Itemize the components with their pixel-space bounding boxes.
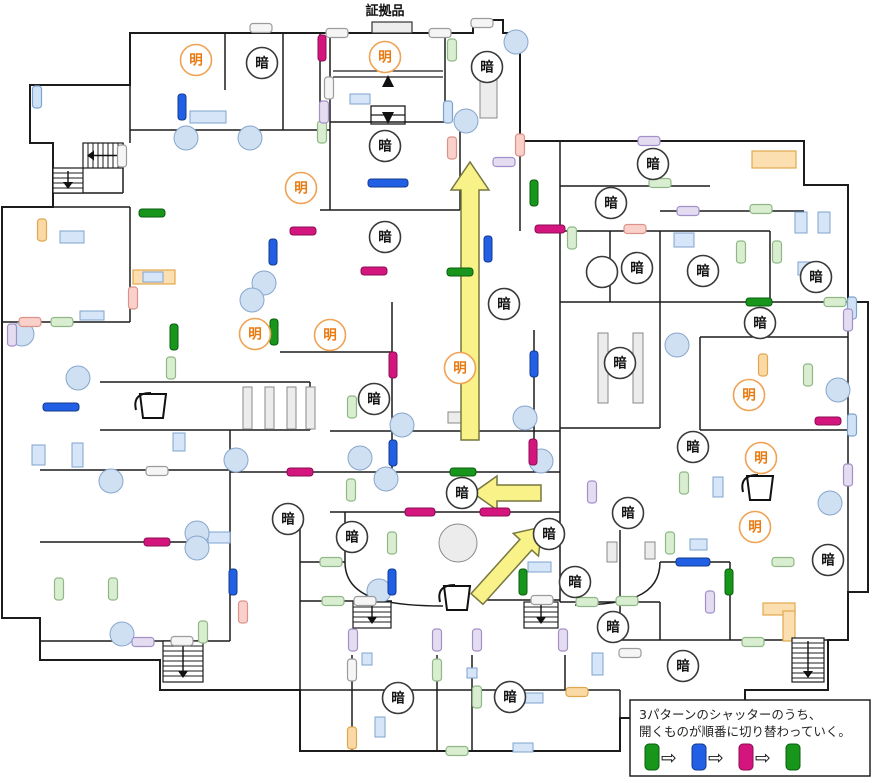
shutter-marker-pink xyxy=(361,267,387,275)
furniture xyxy=(713,477,723,497)
door-marker-lv xyxy=(473,629,482,651)
shelf xyxy=(645,542,655,559)
door-marker-lv xyxy=(8,324,17,346)
shutter-marker-green xyxy=(519,569,527,595)
shutter-marker-blue xyxy=(676,558,710,566)
furniture xyxy=(190,111,226,123)
furniture xyxy=(362,653,372,665)
door-marker-lg xyxy=(322,597,344,606)
room-dark-label-text: 暗 xyxy=(613,355,627,372)
room-bright-label-text: 明 xyxy=(378,50,392,66)
furniture xyxy=(375,717,385,737)
column xyxy=(390,413,414,437)
room-dark-label-text: 暗 xyxy=(606,619,620,636)
furniture xyxy=(80,311,104,320)
shutter-marker-green xyxy=(725,569,733,595)
door-marker-sa xyxy=(516,134,525,156)
door-marker-lg xyxy=(680,472,689,494)
legend-arrow-icon: ⇨ xyxy=(755,747,771,769)
furniture xyxy=(795,212,807,233)
shutter-marker-green xyxy=(139,209,165,217)
door-marker-lv xyxy=(132,638,154,647)
furniture xyxy=(173,433,185,451)
shutter-marker-green xyxy=(746,298,772,306)
evidence-box xyxy=(372,22,412,33)
shelf xyxy=(243,387,252,429)
furniture xyxy=(350,94,370,104)
room-dark-label-text: 暗 xyxy=(542,526,556,543)
shutter-marker-blue xyxy=(229,569,237,595)
door-marker-wh xyxy=(619,649,641,658)
room-dark-label-text: 暗 xyxy=(821,552,835,569)
room-dark-label-text: 暗 xyxy=(281,511,295,528)
room-dark-label-text: 暗 xyxy=(809,269,823,286)
room-bright-label-text: 明 xyxy=(323,328,337,344)
room-dark-label-text: 暗 xyxy=(367,391,381,408)
door-marker-sa xyxy=(448,137,457,159)
door-marker-lg xyxy=(576,598,598,607)
room-dark-label-text: 暗 xyxy=(480,59,494,76)
door-marker-lg xyxy=(318,121,327,143)
door-marker-lg xyxy=(666,532,675,554)
room-dark-label-text: 暗 xyxy=(345,529,359,546)
column xyxy=(174,126,198,150)
shelf xyxy=(287,387,296,429)
shutter-marker-green xyxy=(447,268,473,276)
furniture xyxy=(60,231,84,243)
door-marker-lg xyxy=(737,241,746,263)
furniture xyxy=(690,539,707,550)
column xyxy=(110,622,134,646)
door-marker-lv xyxy=(433,629,442,651)
door-marker-lv xyxy=(320,101,329,123)
legend-shutter-pink-2 xyxy=(739,744,753,770)
shelf xyxy=(265,387,274,429)
door-marker-or xyxy=(38,219,47,241)
door-marker-lb xyxy=(33,86,42,108)
room-dark-label-text: 暗 xyxy=(621,505,635,522)
door-marker-lg xyxy=(568,227,577,249)
legend-shutter-green-3 xyxy=(786,744,800,770)
room-bright-label-text: 明 xyxy=(748,520,762,536)
door-marker-lg xyxy=(446,747,468,756)
legend: 3パターンのシャッターのうち、 開くものが順番に切り替わっていく。 ⇨⇨⇨ xyxy=(630,700,870,776)
door-marker-wh xyxy=(471,19,493,28)
bucket-icon xyxy=(140,394,166,418)
door-marker-or xyxy=(348,727,357,749)
shutter-marker-green xyxy=(530,180,538,206)
room-dark-label-text: 暗 xyxy=(686,439,700,456)
furniture xyxy=(528,562,551,572)
room-dark-label-text: 暗 xyxy=(455,485,469,502)
shutter-marker-green xyxy=(270,319,278,345)
door-marker-lg xyxy=(167,357,176,379)
furniture xyxy=(143,272,163,282)
column xyxy=(99,469,123,493)
door-marker-wh xyxy=(171,637,193,646)
shutter-marker-blue xyxy=(269,239,277,265)
furniture xyxy=(674,233,694,247)
legend-arrow-icon: ⇨ xyxy=(661,747,677,769)
door-marker-wh xyxy=(531,596,553,605)
shutter-marker-pink xyxy=(535,225,565,233)
column xyxy=(224,448,248,472)
column xyxy=(348,446,372,470)
legend-arrow-icon: ⇨ xyxy=(708,747,724,769)
column xyxy=(818,491,842,515)
room-bright-label-text: 明 xyxy=(453,361,467,377)
door-marker-lv xyxy=(559,629,568,651)
shutter-marker-blue xyxy=(43,403,79,411)
door-marker-wh xyxy=(326,29,348,38)
door-marker-sa xyxy=(19,318,41,327)
furniture xyxy=(513,743,533,752)
room-dark-label-text: 暗 xyxy=(646,156,660,173)
door-marker-lg xyxy=(804,364,813,386)
door-marker-wh xyxy=(429,29,451,38)
door-marker-lv xyxy=(638,137,660,146)
map-canvas: 明明明明明明明明明暗暗暗暗暗暗暗暗暗暗暗暗暗暗暗暗暗暗暗暗暗暗暗暗暗 証拠品 3… xyxy=(0,0,874,783)
column xyxy=(504,30,528,54)
door-marker-lg xyxy=(433,659,442,681)
shutter-marker-green xyxy=(450,468,476,476)
door-marker-lv xyxy=(588,481,597,503)
door-marker-wh xyxy=(348,659,357,681)
door-marker-lg xyxy=(109,578,118,600)
shutter-marker-pink xyxy=(287,468,313,476)
legend-line-1: 3パターンのシャッターのうち、 xyxy=(639,707,821,722)
highlight-area xyxy=(783,611,795,641)
column xyxy=(185,536,209,560)
shutter-marker-blue xyxy=(530,351,538,377)
door-marker-lg xyxy=(348,396,357,418)
shutter-marker-pink xyxy=(290,227,316,235)
shelf xyxy=(607,542,617,562)
shutter-marker-blue xyxy=(388,569,396,595)
column xyxy=(66,366,90,390)
room-dark-label-text: 暗 xyxy=(497,296,511,313)
bucket-icon xyxy=(444,586,470,610)
furniture xyxy=(208,532,230,543)
door-marker-lv xyxy=(706,591,715,613)
floor-map: 明明明明明明明明明暗暗暗暗暗暗暗暗暗暗暗暗暗暗暗暗暗暗暗暗暗暗暗暗暗 証拠品 3… xyxy=(0,0,874,783)
door-marker-lg xyxy=(824,298,846,307)
furniture xyxy=(818,212,830,233)
legend-shutter-green-0 xyxy=(645,744,659,770)
room-bright-label-text: 明 xyxy=(754,451,768,467)
door-marker-wh xyxy=(146,467,168,476)
shutter-marker-pink xyxy=(318,35,326,61)
room-bright-label-text: 明 xyxy=(294,181,308,197)
furniture xyxy=(467,668,477,678)
door-marker-lg xyxy=(55,578,64,600)
door-marker-lg xyxy=(772,558,794,567)
door-marker-wh xyxy=(250,24,272,33)
furniture xyxy=(32,445,45,465)
column xyxy=(513,406,537,430)
shutter-marker-blue xyxy=(484,236,492,262)
shutter-marker-pink xyxy=(389,352,397,378)
door-marker-wh xyxy=(325,77,334,99)
furniture xyxy=(525,693,543,703)
door-marker-lv xyxy=(844,309,853,331)
door-marker-wh xyxy=(354,597,376,606)
highlight-area xyxy=(752,151,796,168)
room-bright-label-text: 明 xyxy=(189,53,203,69)
column xyxy=(454,109,478,133)
shelf xyxy=(306,387,315,429)
room-plain-circle-circle xyxy=(587,257,618,288)
door-marker-lv xyxy=(349,629,358,651)
column xyxy=(240,288,264,312)
furniture xyxy=(72,443,83,467)
column xyxy=(374,467,398,491)
shutter-marker-blue xyxy=(389,440,397,466)
door-marker-lv xyxy=(677,207,699,216)
shutter-marker-pink xyxy=(480,508,510,516)
shutter-marker-blue xyxy=(178,94,186,120)
room-bright-label-text: 明 xyxy=(742,388,756,404)
column xyxy=(238,126,262,150)
shutter-marker-pink xyxy=(405,508,435,516)
room-dark-label-text: 暗 xyxy=(503,689,517,706)
door-marker-lg xyxy=(448,39,457,61)
room-dark-label-text: 暗 xyxy=(378,229,392,246)
map-layer: 明明明明明明明明明暗暗暗暗暗暗暗暗暗暗暗暗暗暗暗暗暗暗暗暗暗暗暗暗暗 xyxy=(2,19,868,756)
door-marker-lb xyxy=(444,101,453,123)
legend-line-2: 開くものが順番に切り替わっていく。 xyxy=(639,724,851,739)
door-marker-lg xyxy=(320,558,342,567)
door-marker-lg xyxy=(742,638,764,647)
shelf xyxy=(480,80,497,118)
door-marker-lg xyxy=(347,479,356,501)
evidence-label: 証拠品 xyxy=(365,3,404,19)
door-marker-wh xyxy=(118,145,127,167)
room-dark-label-text: 暗 xyxy=(378,138,392,155)
shutter-marker-blue xyxy=(368,179,408,187)
room-dark-label-text: 暗 xyxy=(604,195,618,212)
door-marker-lg xyxy=(616,597,638,606)
room-dark-label-text: 暗 xyxy=(568,574,582,591)
column xyxy=(665,333,689,357)
room-dark-label-text: 暗 xyxy=(676,658,690,675)
shutter-marker-pink xyxy=(529,439,537,465)
door-marker-lg xyxy=(750,205,772,214)
shutter-marker-green xyxy=(170,324,178,350)
door-marker-or xyxy=(566,688,588,697)
room-dark-label-text: 暗 xyxy=(753,315,767,332)
door-marker-sa xyxy=(624,225,646,234)
room-dark-label-text: 暗 xyxy=(391,690,405,707)
door-marker-lg xyxy=(473,686,482,708)
door-marker-sa xyxy=(129,287,138,309)
shutter-marker-pink xyxy=(144,538,170,546)
room-bright-label-text: 明 xyxy=(248,327,262,343)
legend-shutter-blue-1 xyxy=(692,744,706,770)
column xyxy=(826,378,850,402)
door-marker-lb xyxy=(848,414,857,436)
shutter-marker-pink xyxy=(815,417,841,425)
room-dark-label-text: 暗 xyxy=(255,55,269,72)
door-marker-lv xyxy=(844,464,853,486)
room-dark-label-text: 暗 xyxy=(630,260,644,277)
door-marker-or xyxy=(759,354,768,376)
door-marker-lg xyxy=(51,318,73,327)
door-marker-lg xyxy=(388,532,397,554)
room-dark-label-text: 暗 xyxy=(696,263,710,280)
door-marker-sa xyxy=(239,601,248,623)
furniture xyxy=(592,653,603,675)
round-plaza xyxy=(439,524,477,562)
bucket-icon xyxy=(747,476,773,500)
door-marker-lv xyxy=(493,158,515,167)
door-marker-lg xyxy=(773,241,782,263)
door-marker-lg xyxy=(199,621,208,643)
